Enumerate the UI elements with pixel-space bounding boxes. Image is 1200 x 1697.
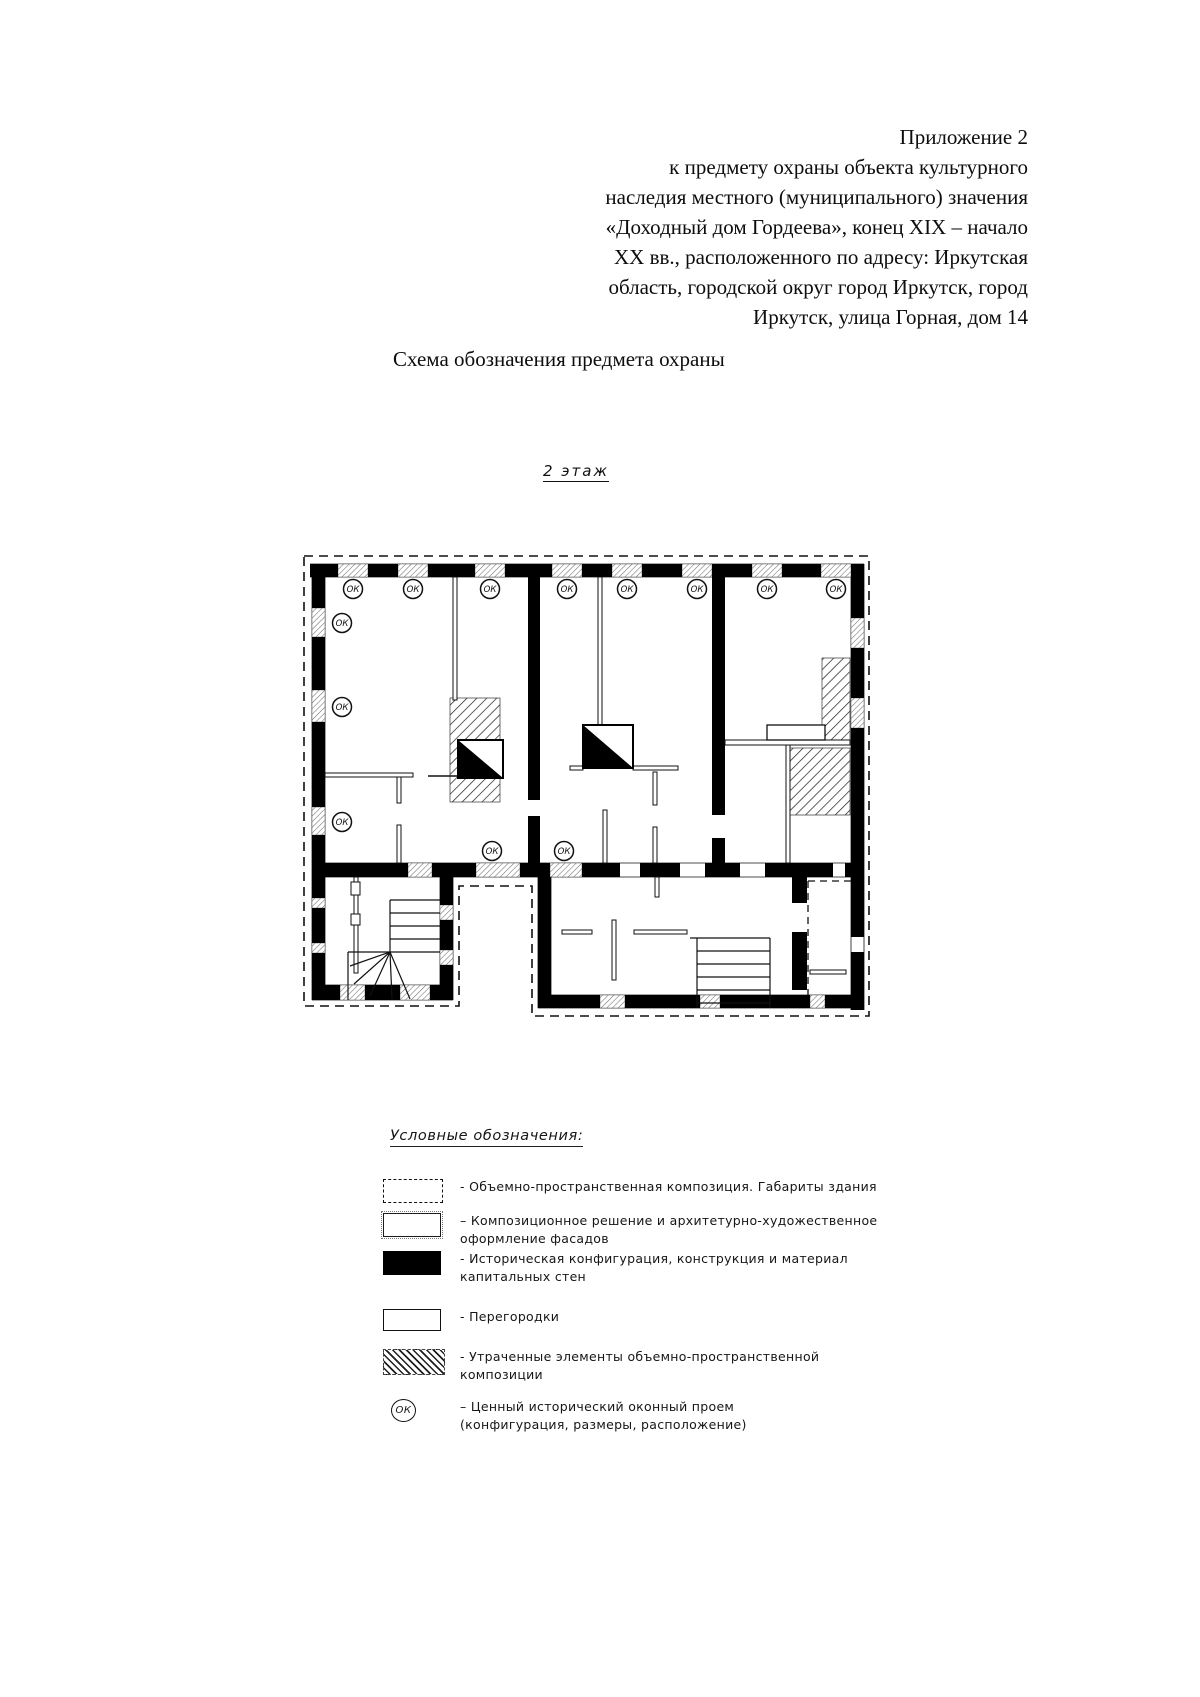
dashed-rect-symbol	[383, 1179, 443, 1203]
hatched-rect-symbol	[383, 1349, 445, 1375]
legend-title: Условные обозначения:	[390, 1128, 583, 1147]
svg-text:ОК: ОК	[558, 847, 572, 857]
window-ok-mark: ОК	[618, 580, 637, 599]
legend-item-text: – Композиционное решение и архитетурно-х…	[460, 1212, 910, 1248]
window-ok-mark: ОК	[344, 580, 363, 599]
svg-text:ОК: ОК	[621, 585, 635, 595]
window-ok-mark: ОК	[333, 813, 352, 832]
svg-text:ОК: ОК	[761, 585, 775, 595]
floor-plan: ОКОКОКОКОКОКОКОКОКОКОКОКОК	[280, 548, 872, 1018]
legend-item-text: - Историческая конфигурация, конструкция…	[460, 1250, 910, 1286]
floor-plan-drawing: ОКОКОКОКОКОКОКОКОКОКОКОКОК	[280, 548, 872, 1018]
svg-text:ОК: ОК	[336, 818, 350, 828]
ok-circle-symbol: ОК	[391, 1399, 416, 1422]
capital-walls	[310, 564, 864, 1010]
solid-rect-symbol	[383, 1251, 441, 1275]
legend-item-text: - Объемно-пространственная композиция. Г…	[460, 1178, 910, 1196]
window-ok-mark: ОК	[758, 580, 777, 599]
window-ok-marks: ОКОКОКОКОКОКОКОКОКОКОКОКОК	[333, 580, 846, 861]
window-ok-mark: ОК	[483, 842, 502, 861]
window-ok-mark: ОК	[688, 580, 707, 599]
facade-rect-symbol	[383, 1213, 441, 1237]
partitions	[325, 577, 850, 980]
window-ok-mark: ОК	[333, 614, 352, 633]
window-ok-mark: ОК	[558, 580, 577, 599]
svg-text:ОК: ОК	[561, 585, 575, 595]
window-ok-mark: ОК	[404, 580, 423, 599]
window-ok-mark: ОК	[827, 580, 846, 599]
document-page: Приложение 2 к предмету охраны объекта к…	[0, 0, 1200, 1697]
svg-text:ОК: ОК	[336, 619, 350, 629]
floor-label: 2 этаж	[543, 462, 609, 482]
empty-rect-symbol	[383, 1309, 441, 1331]
window-ok-mark: ОК	[555, 842, 574, 861]
window-ok-mark: ОК	[333, 698, 352, 717]
scheme-title: Схема обозначения предмета охраны	[393, 347, 725, 372]
legend-item-text: - Утраченные элементы объемно-пространст…	[460, 1348, 910, 1384]
legend-item-text: - Перегородки	[460, 1308, 910, 1326]
svg-text:ОК: ОК	[484, 585, 498, 595]
window-openings	[312, 564, 864, 1008]
svg-text:ОК: ОК	[407, 585, 421, 595]
appendix-header: Приложение 2 к предмету охраны объекта к…	[468, 122, 1028, 332]
svg-text:ОК: ОК	[830, 585, 844, 595]
legend-item-text: – Ценный исторический оконный проем (кон…	[460, 1398, 910, 1434]
wall-edge-lines	[310, 564, 864, 1010]
svg-text:ОК: ОК	[691, 585, 705, 595]
building-outline-dashed	[304, 556, 869, 1016]
window-ok-mark: ОК	[481, 580, 500, 599]
svg-text:ОК: ОК	[336, 703, 350, 713]
svg-text:ОК: ОК	[486, 847, 500, 857]
svg-text:ОК: ОК	[347, 585, 361, 595]
